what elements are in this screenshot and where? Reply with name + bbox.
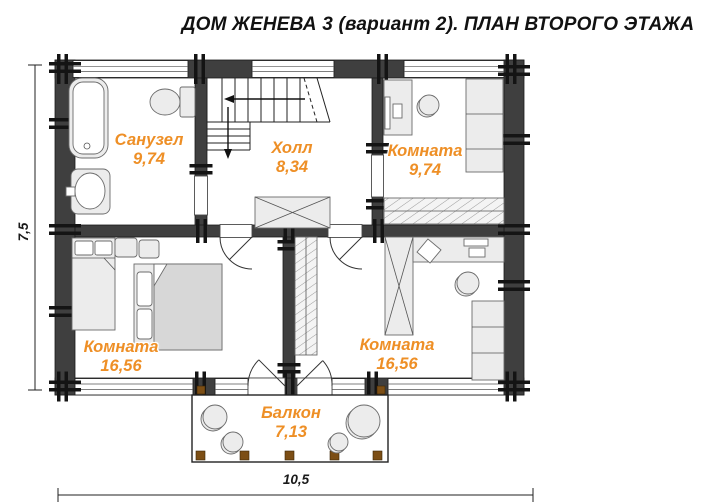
window-bottom-1	[75, 379, 193, 396]
nightstand-1	[115, 238, 137, 257]
window-top-1	[73, 61, 188, 78]
label-bathroom: Санузел 9,74	[84, 131, 214, 169]
label-room-bottom-left: Комната 16,56	[56, 338, 186, 376]
dresser-bottom-right	[472, 301, 504, 380]
bottom-right-room-door	[328, 225, 362, 270]
room-area: 9,74	[360, 161, 490, 180]
closet-hatched-top-right	[384, 198, 504, 224]
bathroom-door	[195, 176, 208, 215]
room-area: 7,13	[226, 423, 356, 442]
room-area: 16,56	[56, 357, 186, 376]
desk-top-right	[384, 80, 412, 135]
room-name: Комната	[56, 338, 186, 357]
label-room-bottom-right: Комната 16,56	[332, 336, 462, 374]
dimension-width-label: 10,5	[266, 473, 326, 487]
label-room-top-right: Комната 9,74	[360, 142, 490, 180]
room-name: Санузел	[84, 131, 214, 150]
label-hall: Холл 8,34	[227, 139, 357, 177]
room-name: Комната	[332, 336, 462, 355]
hall-wardrobe	[255, 197, 330, 228]
floor-plan-drawing	[0, 0, 716, 502]
sink	[66, 169, 110, 214]
label-balcony: Балкон 7,13	[226, 404, 356, 442]
chair-bottom-right	[455, 272, 479, 296]
window-bottom-3	[332, 379, 365, 396]
single-bed	[72, 238, 115, 330]
desk-bottom-right	[413, 237, 504, 263]
toilet	[150, 87, 195, 117]
room-name: Комната	[360, 142, 490, 161]
room-name: Холл	[227, 139, 357, 158]
chair-top-right	[417, 95, 439, 117]
dimension-depth-label: 7,5	[17, 202, 31, 262]
room-area: 8,34	[227, 158, 357, 177]
closet-hatched-bottom-right	[295, 237, 317, 355]
room-area: 16,56	[332, 355, 462, 374]
window-top-3	[404, 61, 504, 78]
window-top-2	[252, 61, 334, 78]
balcony-door-right	[297, 361, 332, 395]
nightstand-2	[139, 240, 159, 258]
room-area: 9,74	[84, 150, 214, 169]
bottom-left-room-furniture	[72, 238, 222, 350]
bottom-left-room-door	[220, 225, 252, 270]
window-bottom-4	[388, 379, 504, 396]
wardrobe-x-bottom-right	[385, 237, 413, 335]
floor-plan-page: ДОМ ЖЕНЕВА 3 (вариант 2). ПЛАН ВТОРОГО Э…	[0, 0, 716, 502]
window-bottom-2	[215, 379, 248, 396]
room-name: Балкон	[226, 404, 356, 423]
